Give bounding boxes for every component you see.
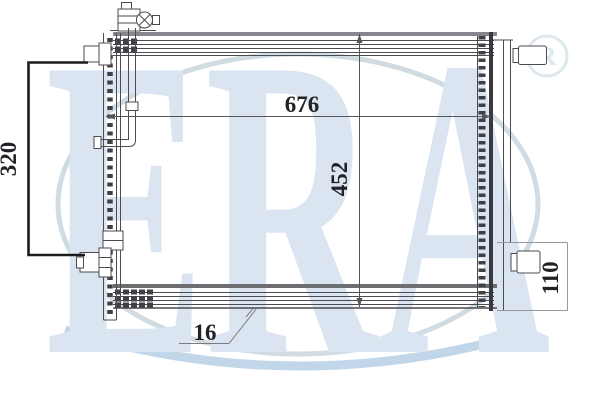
dimension-label-320: 320 — [0, 142, 21, 177]
drawing-canvas: ERA R — [0, 0, 600, 400]
dimension-label-676: 676 — [285, 92, 320, 117]
pipe-joint — [126, 102, 138, 111]
dimension-label-452: 452 — [327, 162, 352, 197]
era-watermark: ERA R — [46, 0, 568, 400]
dimension-label-16: 16 — [194, 320, 217, 345]
mounting-bracket-bottom-right — [511, 251, 540, 273]
condenser-technical-drawing: ERA R — [0, 0, 600, 400]
dimension-label-110: 110 — [538, 261, 563, 294]
drier-clip — [103, 231, 123, 250]
right-side-plate — [489, 32, 493, 311]
watermark-brand-text: ERA — [46, 0, 551, 400]
bottom-header — [113, 284, 497, 308]
outlet-connector-top — [84, 43, 111, 65]
